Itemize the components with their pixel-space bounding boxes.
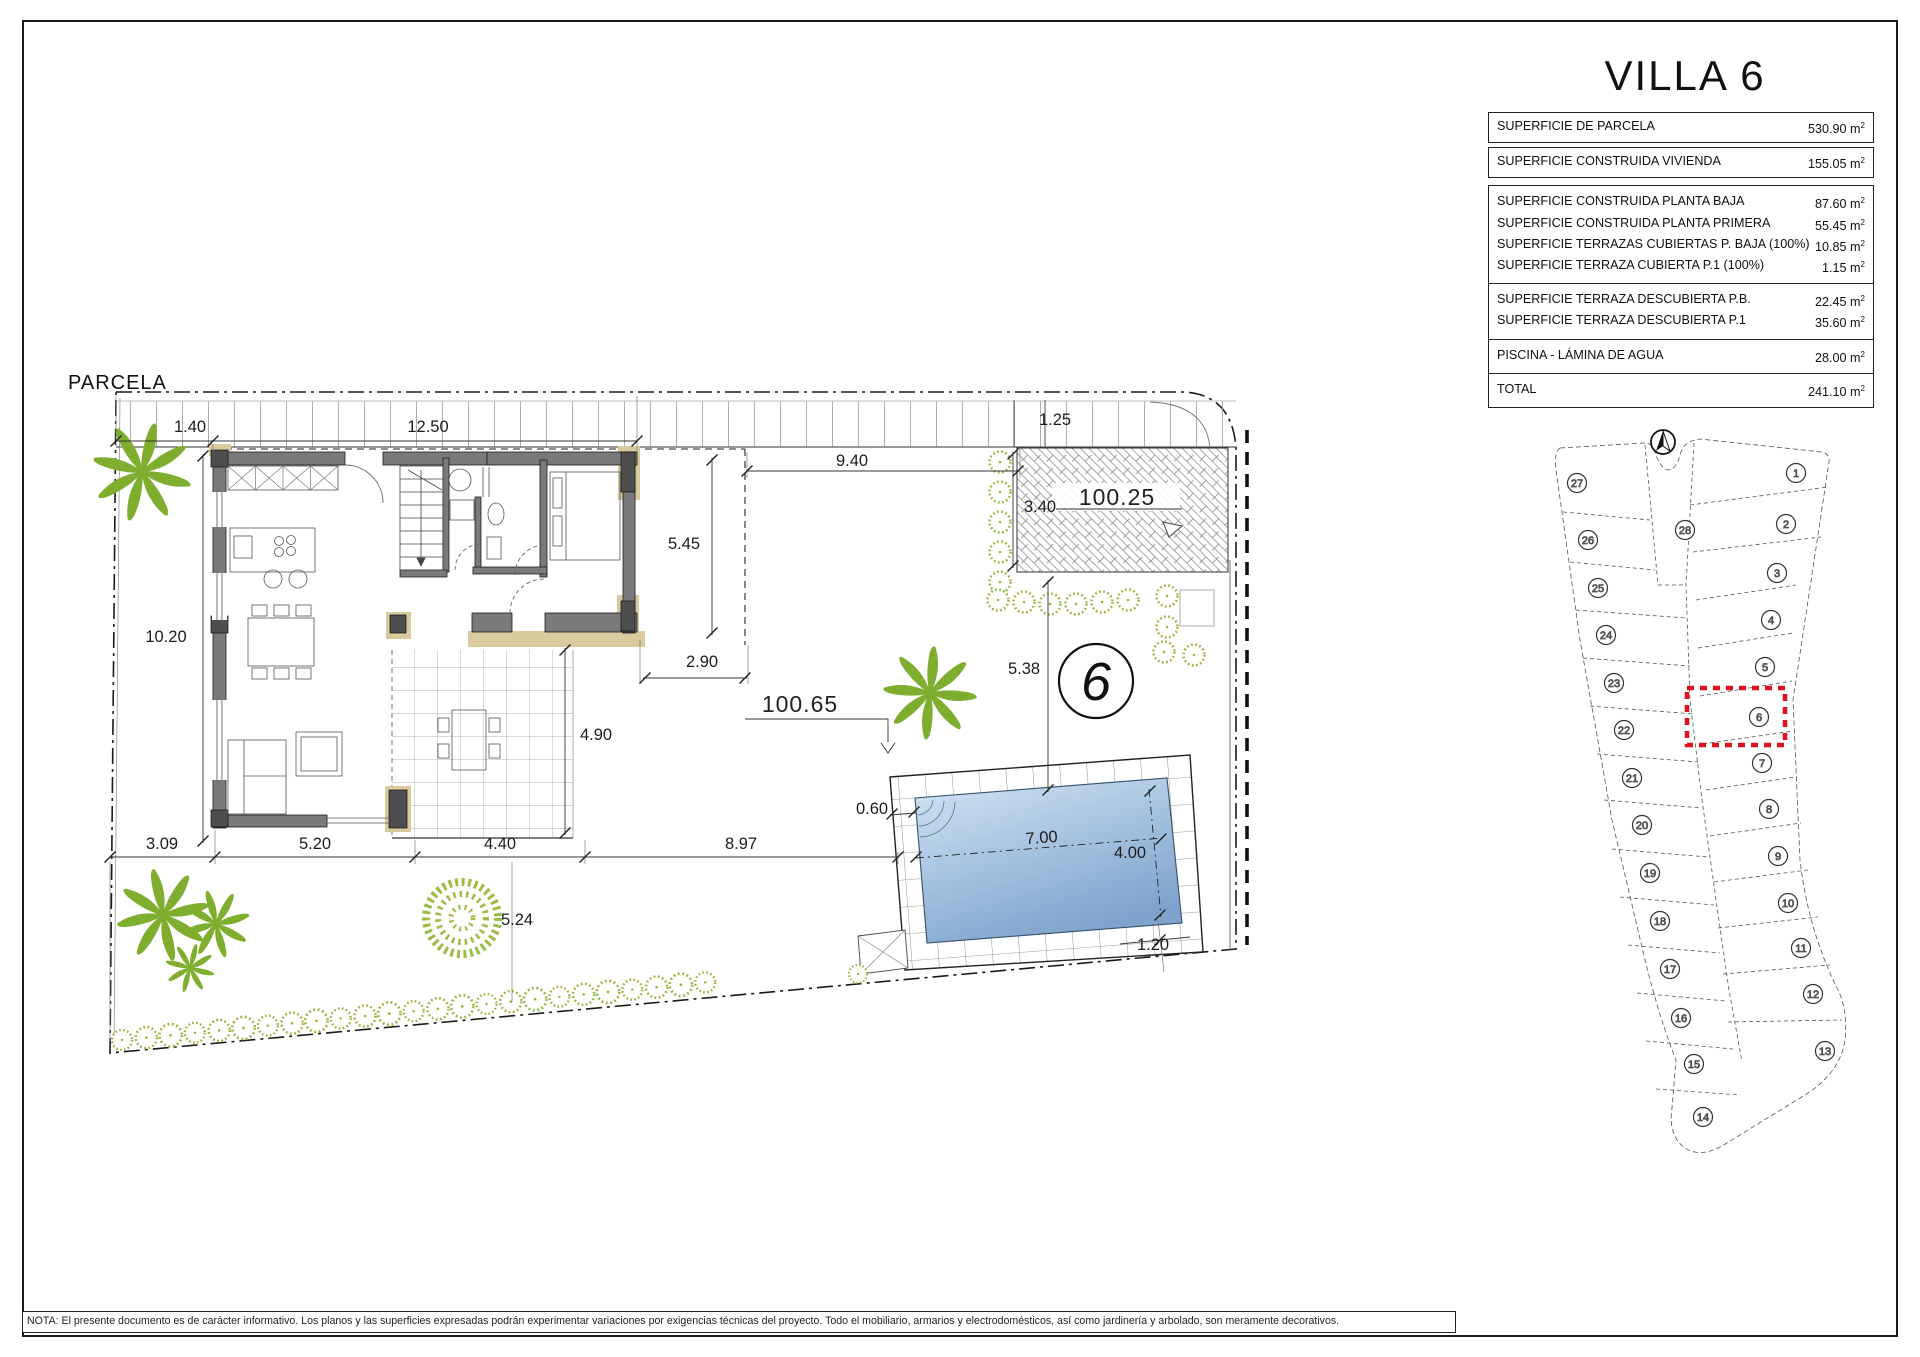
row-label: SUPERFICIE TERRAZA DESCUBIERTA P.B. [1497, 290, 1751, 311]
svg-text:0.60: 0.60 [856, 800, 888, 818]
svg-text:15: 15 [1688, 1059, 1700, 1071]
shrub-icon [136, 1027, 157, 1048]
shrub-icon [990, 482, 1011, 503]
patio-tiles [392, 650, 573, 838]
svg-text:16: 16 [1675, 1013, 1687, 1025]
shrub-icon [1066, 594, 1087, 615]
area-summary-table: SUPERFICIE DE PARCELA530.90 m2SUPERFICIE… [1488, 112, 1874, 412]
table-row: SUPERFICIE DE PARCELA530.90 m2 [1489, 113, 1873, 142]
villa-number-badge: 6 [1059, 644, 1133, 718]
table-row: TOTAL241.10 m2 [1497, 380, 1865, 401]
page-title: VILLA 6 [1490, 52, 1880, 100]
shrub-icon [282, 1013, 303, 1034]
row-label: SUPERFICIE CONSTRUIDA PLANTA BAJA [1497, 192, 1745, 213]
row-value: 241.10 m2 [1808, 380, 1865, 401]
shrub-icon [1157, 617, 1178, 638]
garden-area-label: 100.65 [762, 691, 838, 717]
shrub-icon [112, 1030, 132, 1050]
svg-text:17: 17 [1664, 964, 1676, 976]
row-value: 35.60 m2 [1815, 311, 1865, 332]
svg-text:10.20: 10.20 [145, 628, 186, 646]
plot-circle: 16 [1672, 1009, 1691, 1028]
svg-text:5.20: 5.20 [299, 835, 331, 853]
svg-text:1.40: 1.40 [174, 418, 206, 436]
shrub-icon [1014, 592, 1035, 613]
shrub-icon [524, 988, 546, 1010]
shrub-icon [1184, 645, 1205, 666]
plot-circle: 23 [1605, 674, 1624, 693]
plot-circle: 5 [1756, 658, 1775, 677]
plot-circle: 7 [1753, 754, 1772, 773]
stairs [400, 466, 443, 570]
svg-text:5.45: 5.45 [668, 535, 700, 553]
plot-circle: 21 [1623, 769, 1642, 788]
row-value: 22.45 m2 [1815, 290, 1865, 311]
svg-text:8.97: 8.97 [725, 835, 757, 853]
svg-text:1.25: 1.25 [1039, 411, 1071, 429]
plot-circle: 22 [1615, 721, 1634, 740]
plot-circle: 20 [1633, 816, 1652, 835]
shrub-icon [622, 980, 642, 1000]
svg-text:2.90: 2.90 [686, 653, 718, 671]
row-value: 530.90 m2 [1808, 117, 1865, 138]
row-label: SUPERFICIE DE PARCELA [1497, 117, 1655, 138]
shrub-icon [1154, 642, 1175, 663]
table-section: TOTAL241.10 m2 [1489, 373, 1873, 407]
table-row: SUPERFICIE CONSTRUIDA VIVIENDA155.05 m2 [1489, 148, 1873, 177]
shrub-icon [404, 1001, 424, 1021]
kitchen [228, 466, 338, 588]
svg-text:19: 19 [1644, 868, 1656, 880]
shrub-icon [500, 991, 521, 1012]
svg-text:26: 26 [1582, 535, 1594, 547]
shrub-icon [354, 1005, 375, 1026]
plot-circle: 18 [1651, 912, 1670, 931]
row-label: SUPERFICIE TERRAZA DESCUBIERTA P.1 [1497, 311, 1746, 332]
svg-text:6: 6 [1081, 652, 1112, 712]
dining-living-furniture [228, 605, 342, 814]
shrub-icon [597, 981, 619, 1003]
shrub-icon [1040, 594, 1061, 615]
shrub-icon [305, 1010, 327, 1032]
palm-tree-icon [879, 642, 980, 743]
row-value: 87.60 m2 [1815, 192, 1865, 213]
svg-text:3: 3 [1774, 568, 1780, 580]
plot-circle: 25 [1589, 579, 1608, 598]
plot-circle: 8 [1760, 800, 1779, 819]
shrub-icon [451, 995, 473, 1017]
plot-circle: 26 [1579, 531, 1598, 550]
svg-text:8: 8 [1766, 804, 1772, 816]
plot-circle: 3 [1768, 564, 1787, 583]
table-box: SUPERFICIE CONSTRUIDA VIVIENDA155.05 m2 [1488, 147, 1874, 178]
bedroom [550, 472, 620, 560]
plot-circle: 19 [1641, 864, 1660, 883]
driveway-area-label: 100.25 [1079, 484, 1155, 510]
row-value: 10.85 m2 [1815, 235, 1865, 256]
shrub-icon [990, 452, 1011, 473]
table-box: SUPERFICIE CONSTRUIDA PLANTA BAJA87.60 m… [1488, 185, 1874, 408]
svg-text:7.00: 7.00 [1025, 828, 1058, 849]
highlighted-plot-outline [1687, 688, 1785, 745]
plot-circle: 28 [1676, 521, 1695, 540]
svg-text:6: 6 [1756, 712, 1762, 724]
row-label: PISCINA - LÁMINA DE AGUA [1497, 346, 1664, 367]
north-compass-icon [1651, 430, 1675, 454]
shrub-icon [990, 512, 1011, 533]
svg-text:4: 4 [1768, 615, 1774, 627]
svg-text:3.09: 3.09 [146, 835, 178, 853]
svg-text:12: 12 [1807, 989, 1819, 1001]
shrub-icon [1118, 590, 1139, 611]
shrub-icon [1157, 586, 1178, 607]
shrub-icon [573, 984, 594, 1005]
shrub-icon [378, 1002, 400, 1024]
shrub-icon [331, 1008, 351, 1028]
svg-text:14: 14 [1697, 1112, 1709, 1124]
plot-circle: 2 [1777, 515, 1796, 534]
table-box: SUPERFICIE DE PARCELA530.90 m2 [1488, 112, 1874, 143]
svg-text:12.50: 12.50 [407, 418, 448, 436]
svg-text:4.40: 4.40 [484, 835, 516, 853]
svg-text:5.38: 5.38 [1008, 660, 1040, 678]
svg-text:4.00: 4.00 [1114, 844, 1146, 862]
svg-text:21: 21 [1626, 773, 1638, 785]
svg-text:3.40: 3.40 [1024, 498, 1056, 516]
table-row: SUPERFICIE TERRAZA CUBIERTA P.1 (100%)1.… [1497, 256, 1865, 277]
plot-circle: 10 [1779, 894, 1798, 913]
shrub-icon [990, 542, 1011, 563]
row-value: 28.00 m2 [1815, 346, 1865, 367]
note-bar: NOTA: El presente documento es de caráct… [22, 1311, 1456, 1333]
row-label: SUPERFICIE CONSTRUIDA VIVIENDA [1497, 152, 1721, 173]
svg-text:5: 5 [1762, 662, 1768, 674]
shrub-icon [477, 994, 497, 1014]
svg-text:23: 23 [1608, 678, 1620, 690]
windows [212, 492, 391, 823]
plot-circle: 27 [1568, 474, 1587, 493]
shrub-icon [646, 977, 667, 998]
table-row: SUPERFICIE TERRAZA DESCUBIERTA P.135.60 … [1497, 311, 1865, 332]
svg-text:13: 13 [1819, 1046, 1831, 1058]
parcela-label: PARCELA [68, 372, 167, 394]
svg-text:20: 20 [1636, 820, 1648, 832]
svg-text:9: 9 [1775, 851, 1781, 863]
note-text: NOTA: El presente documento es de caráct… [27, 1315, 1339, 1327]
garden-planter [1180, 590, 1214, 626]
row-value: 55.45 m2 [1815, 214, 1865, 235]
svg-text:18: 18 [1654, 916, 1666, 928]
plot-circle: 4 [1762, 611, 1781, 630]
svg-text:11: 11 [1795, 943, 1806, 955]
shrub-icon [849, 965, 867, 983]
table-section: PISCINA - LÁMINA DE AGUA28.00 m2 [1489, 339, 1873, 373]
row-label: TOTAL [1497, 380, 1536, 401]
svg-text:4.90: 4.90 [580, 726, 612, 744]
row-label: SUPERFICIE TERRAZAS CUBIERTAS P. BAJA (1… [1497, 235, 1810, 256]
row-label: SUPERFICIE TERRAZA CUBIERTA P.1 (100%) [1497, 256, 1764, 277]
site-plan: 2726252423222120191817161514281234567891… [1556, 430, 1846, 1153]
svg-text:10: 10 [1782, 898, 1794, 910]
svg-text:28: 28 [1679, 525, 1691, 537]
table-section: SUPERFICIE CONSTRUIDA PLANTA BAJA87.60 m… [1489, 186, 1873, 283]
plot-circle: 9 [1769, 847, 1788, 866]
svg-text:24: 24 [1600, 630, 1612, 642]
svg-text:27: 27 [1571, 478, 1583, 490]
table-row: SUPERFICIE TERRAZA DESCUBIERTA P.B.22.45… [1497, 290, 1865, 311]
shrub-icon [232, 1017, 254, 1039]
plot-circle: 12 [1804, 985, 1823, 1004]
svg-text:25: 25 [1592, 583, 1604, 595]
svg-text:2: 2 [1783, 519, 1789, 531]
row-value: 155.05 m2 [1808, 152, 1865, 173]
shrub-icon [427, 998, 448, 1019]
svg-text:5.24: 5.24 [501, 911, 533, 929]
svg-text:22: 22 [1618, 725, 1630, 737]
shrub-icon [549, 987, 569, 1007]
plot-circle: 15 [1685, 1055, 1704, 1074]
row-value: 1.15 m2 [1822, 256, 1865, 277]
plot-circle: 14 [1694, 1108, 1713, 1127]
shrub-icon [159, 1024, 181, 1046]
table-row: SUPERFICIE CONSTRUIDA PLANTA BAJA87.60 m… [1497, 192, 1865, 213]
table-row: PISCINA - LÁMINA DE AGUA28.00 m2 [1497, 346, 1865, 367]
shrub-icon [258, 1016, 278, 1036]
plot-circle: 13 [1816, 1042, 1835, 1061]
shrub-icon [1092, 592, 1113, 613]
svg-text:1.20: 1.20 [1137, 936, 1169, 954]
shrub-icon [670, 974, 692, 996]
svg-text:9.40: 9.40 [836, 452, 868, 470]
plot-circle: 1 [1787, 464, 1806, 483]
table-row: SUPERFICIE TERRAZAS CUBIERTAS P. BAJA (1… [1497, 235, 1865, 256]
shrub-icon [988, 590, 1009, 611]
row-label: SUPERFICIE CONSTRUIDA PLANTA PRIMERA [1497, 214, 1770, 235]
bush-icon [426, 882, 498, 954]
shrub-icon [185, 1023, 205, 1043]
drawing-sheet: 100.25 [0, 0, 1920, 1357]
plot-circle: 17 [1661, 960, 1680, 979]
table-section: SUPERFICIE TERRAZA DESCUBIERTA P.B.22.45… [1489, 283, 1873, 338]
shrub-icon [695, 972, 715, 992]
plot-circle: 24 [1597, 626, 1616, 645]
table-row: SUPERFICIE CONSTRUIDA PLANTA PRIMERA55.4… [1497, 214, 1865, 235]
svg-text:7: 7 [1759, 758, 1765, 770]
plot-circle: 11 [1792, 939, 1811, 958]
svg-text:1: 1 [1793, 468, 1799, 480]
shrub-icon [209, 1020, 230, 1041]
plot-circle: 6 [1750, 708, 1769, 727]
